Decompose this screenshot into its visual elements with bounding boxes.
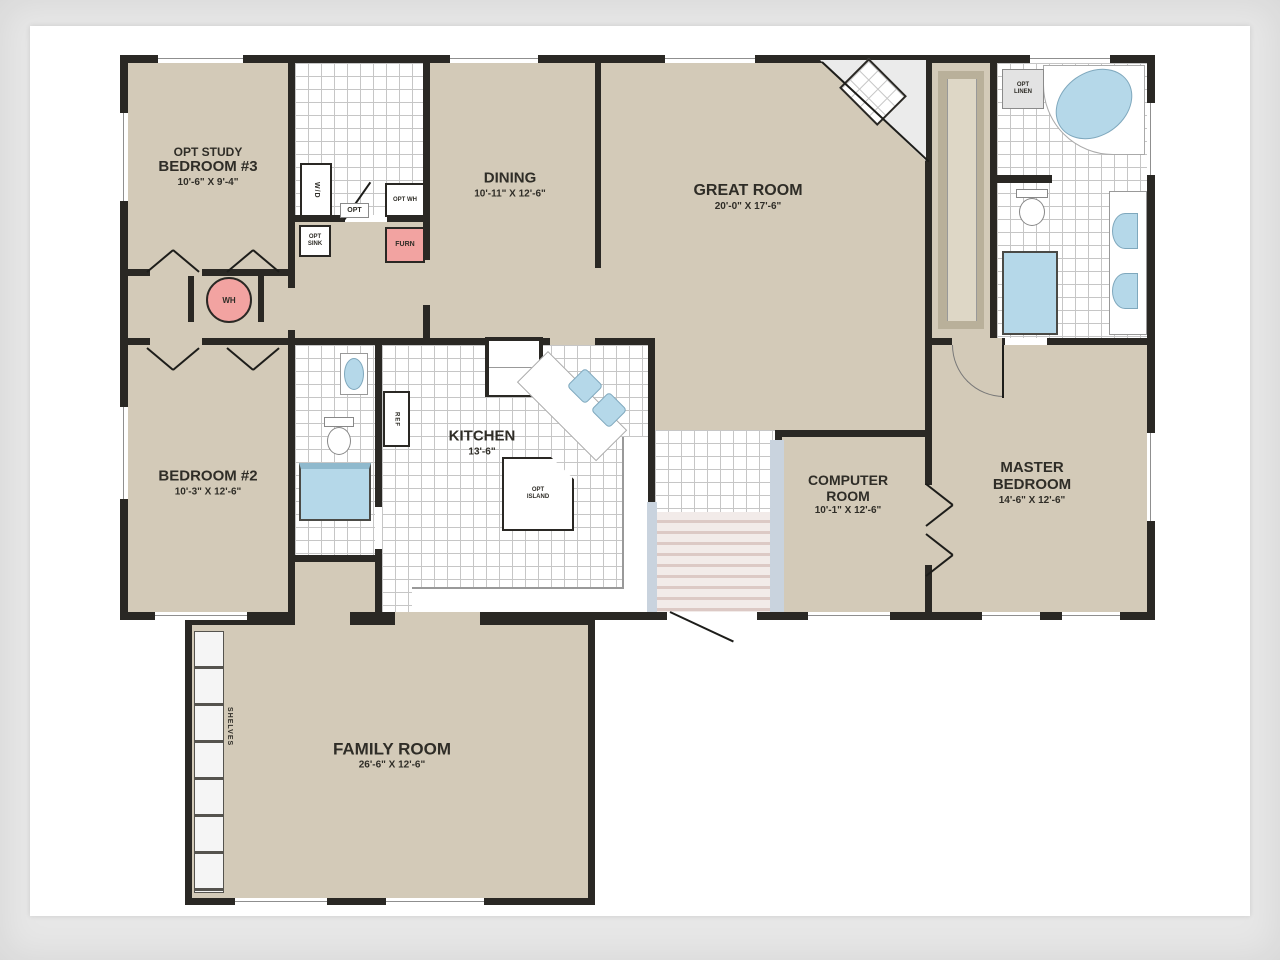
dining-great-divider-wall <box>595 63 601 268</box>
dining-label: DINING 10'-11" X 12'-6" <box>474 171 546 200</box>
window <box>982 612 1040 620</box>
kitchen-dims: 13'-6" <box>449 446 516 457</box>
refrigerator-label: REF <box>394 412 400 427</box>
bedroom3-door-opening <box>150 269 202 276</box>
entry-floor <box>655 430 775 512</box>
furnace: FURN <box>385 227 425 263</box>
door-leaf <box>1002 345 1004 398</box>
wh-closet-wall <box>188 276 194 322</box>
linen-label: OPT LINEN <box>1011 82 1035 95</box>
master-bedroom-name2: BEDROOM <box>993 477 1071 494</box>
window <box>1147 103 1155 175</box>
bedroom3-name: BEDROOM #3 <box>158 159 257 176</box>
dining-dims: 10'-11" X 12'-6" <box>474 188 546 199</box>
kitchen-name: KITCHEN <box>449 429 516 446</box>
bedroom2-name: BEDROOM #2 <box>158 469 257 486</box>
island-label: OPT ISLAND <box>523 487 553 500</box>
water-heater: WH <box>206 277 252 323</box>
floor-plan: W/D OPT WH FURN OPT SINK OPT WH OPT ISLA… <box>120 55 1155 905</box>
opt-sink-box: OPT SINK <box>299 225 331 257</box>
window <box>450 55 538 63</box>
family-room-dims: 26'-6" X 12'-6" <box>333 759 451 770</box>
family-room-name: FAMILY ROOM <box>333 739 451 758</box>
bedroom2-dims: 10'-3" X 12'-6" <box>158 486 257 497</box>
master-bedroom-name: MASTER <box>993 460 1071 477</box>
hall-below-bath-floor <box>295 562 375 612</box>
wardrobe-rod <box>947 79 977 321</box>
stair-wall-right <box>770 440 784 612</box>
kitchen-label: KITCHEN 13'-6" <box>449 429 516 458</box>
window <box>808 612 890 620</box>
window <box>1147 433 1155 521</box>
computer-room-name2: ROOM <box>808 489 888 505</box>
computer-room-name: COMPUTER <box>808 473 888 489</box>
water-heater-label: WH <box>222 296 235 305</box>
bath-half-wall <box>997 175 1052 183</box>
washer-dryer-label: W/D <box>312 182 320 199</box>
family-room-label: FAMILY ROOM 26'-6" X 12'-6" <box>333 739 451 770</box>
opt-door-label: OPT <box>347 207 361 214</box>
window <box>158 55 243 63</box>
refrigerator: REF <box>383 391 410 447</box>
toilet-tank <box>324 417 354 427</box>
window <box>155 612 247 620</box>
toilet-tank <box>1016 189 1048 198</box>
wh-closet-wall <box>258 276 264 322</box>
bedroom3-prefix: OPT STUDY <box>158 146 257 159</box>
kitchen-counter-bottom <box>412 587 648 612</box>
great-room-dims: 20'-0" X 17'-6" <box>693 201 802 212</box>
utility-dining-opening <box>423 260 430 305</box>
master-bedroom-door-opening <box>952 338 1002 345</box>
washer-dryer-unit: W/D <box>300 163 332 217</box>
shelves-label: SHELVES <box>226 707 233 803</box>
linen-cabinet: OPT LINEN <box>1002 69 1044 109</box>
shelves <box>194 631 224 893</box>
dining-name: DINING <box>474 171 546 188</box>
wardrobe <box>938 71 984 329</box>
vanity-sink <box>1112 213 1138 249</box>
computer-room-floor <box>782 437 925 612</box>
furnace-label: FURN <box>395 241 414 249</box>
dining-kitchen-opening <box>550 338 595 345</box>
bedroom2-label: BEDROOM #2 10'-3" X 12'-6" <box>158 469 257 498</box>
window <box>386 898 484 905</box>
hall-utility-opening <box>288 288 295 330</box>
window <box>665 55 755 63</box>
master-bedroom-dims: 14'-6" X 12'-6" <box>993 495 1071 506</box>
bedroom3-label: OPT STUDY BEDROOM #3 10'-6" X 9'-4" <box>158 146 257 188</box>
opt-sink-label: OPT SINK <box>301 234 329 247</box>
great-room-name: GREAT ROOM <box>693 182 802 200</box>
great-room-extension-floor <box>655 338 925 430</box>
bath-sink <box>344 358 364 390</box>
bedroom3-dims: 10'-6" X 9'-4" <box>158 177 257 188</box>
kitchen-family-opening <box>395 612 480 625</box>
toilet <box>1019 198 1045 226</box>
toilet <box>327 427 351 455</box>
bedroom2-door-opening <box>150 338 202 345</box>
shower <box>1002 251 1058 335</box>
window <box>1062 612 1120 620</box>
bathtub <box>299 463 371 521</box>
window <box>235 898 327 905</box>
hall-family-opening <box>295 612 350 625</box>
computer-room-label: COMPUTER ROOM 10'-1" X 12'-6" <box>808 473 888 517</box>
dining-great-floor <box>430 63 925 338</box>
opt-door-chip: OPT <box>340 203 369 218</box>
opt-wh-label: OPT WH <box>393 197 417 204</box>
master-bedroom-label: MASTER BEDROOM 14'-6" X 12'-6" <box>993 460 1071 506</box>
vanity-sink <box>1112 273 1138 309</box>
stairs <box>655 512 775 612</box>
master-bath-door-opening <box>1005 338 1047 345</box>
great-room-label: GREAT ROOM 20'-0" X 17'-6" <box>693 182 802 212</box>
kitchen-counter-right <box>622 437 648 589</box>
computer-room-dims: 10'-1" X 12'-6" <box>808 506 888 517</box>
opt-water-heater-box: OPT WH <box>385 183 425 217</box>
hall-bath-door-opening <box>375 507 382 549</box>
window <box>120 407 128 499</box>
window <box>1030 55 1110 63</box>
window <box>120 113 128 201</box>
stair-wall-left <box>647 502 657 612</box>
